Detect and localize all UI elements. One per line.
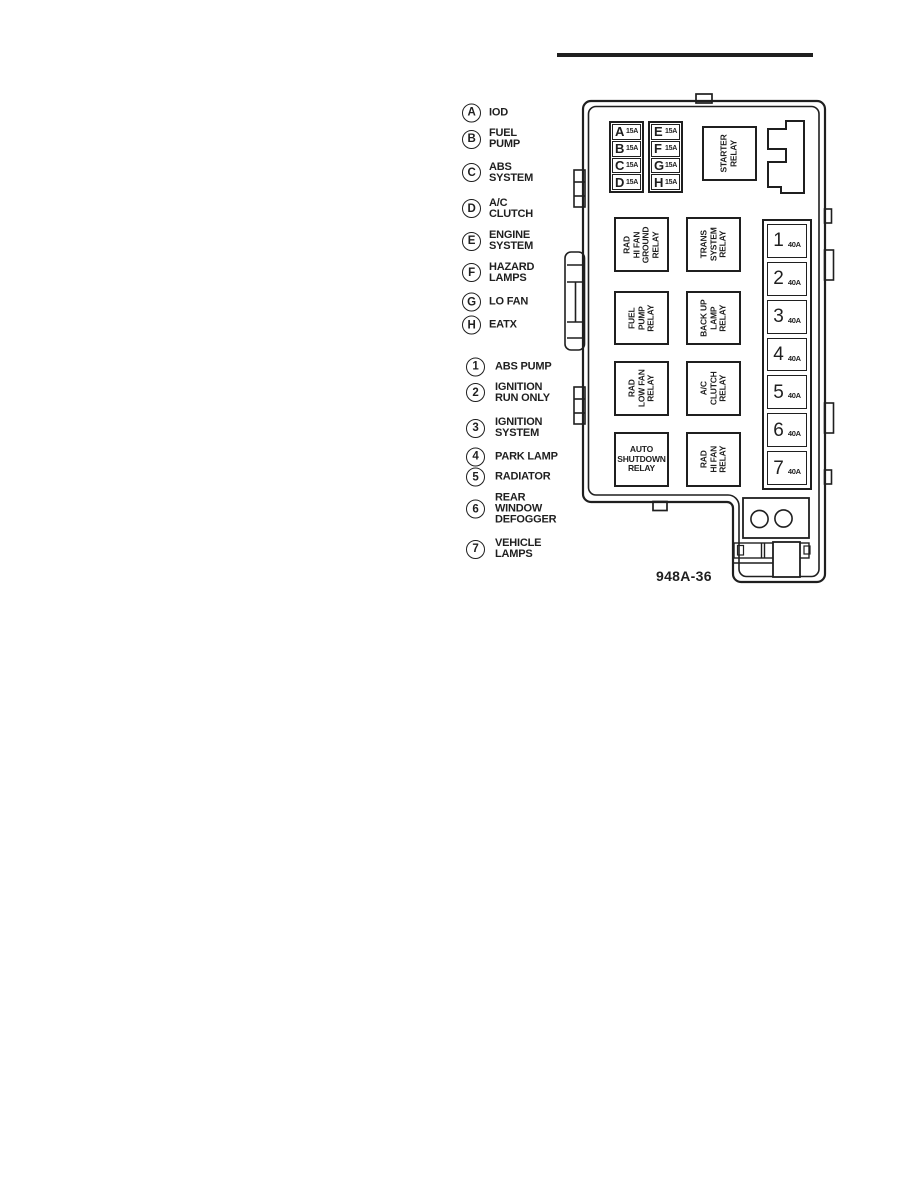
fuse-amps: 15A (665, 145, 677, 152)
legend-label: A/C CLUTCH (489, 198, 533, 220)
relay-label: AUTO SHUTDOWN RELAY (617, 445, 665, 474)
legend-item-g: G LO FAN (462, 293, 528, 312)
maxi-fuse-5: 5 40A (767, 375, 807, 409)
legend-symbol: H (462, 316, 481, 335)
maxi-fuse-amps: 40A (788, 467, 801, 476)
relay-label: STARTER RELAY (720, 134, 739, 172)
connector-tab (773, 542, 800, 577)
relay-starter: STARTER RELAY (702, 126, 757, 181)
relay-label: TRANS SYSTEM RELAY (699, 228, 728, 262)
maxi-fuse-amps: 40A (788, 240, 801, 249)
maxi-fuse-number: 3 (773, 307, 783, 326)
legend-symbol: 3 (466, 419, 485, 438)
fuse-amps: 15A (626, 145, 638, 152)
bolt-hole-right (775, 510, 792, 527)
legend-item-a: A IOD (462, 103, 508, 122)
relay-ac-clutch: A/C CLUTCH RELAY (686, 361, 741, 416)
fuse-letter: H (654, 176, 663, 189)
relay-trans-system: TRANS SYSTEM RELAY (686, 217, 741, 272)
legend-label: RADIATOR (495, 472, 550, 483)
relay-rad-hi-fan-ground: RAD HI FAN GROUND RELAY (614, 217, 669, 272)
maxi-fuse-4: 4 40A (767, 338, 807, 372)
fuse-letter: C (615, 159, 624, 172)
fuse-letter: G (654, 159, 664, 172)
legend-symbol: 2 (466, 383, 485, 402)
legend-label: LO FAN (489, 297, 528, 308)
legend-symbol: F (462, 263, 481, 282)
stepped-connector (768, 121, 804, 193)
fuse-letter: A (615, 125, 624, 138)
legend-symbol: 6 (466, 500, 485, 519)
legend-label: ENGINE SYSTEM (489, 230, 533, 252)
legend-item-2: 2 IGNITION RUN ONLY (466, 382, 550, 404)
legend-symbol: 7 (466, 540, 485, 559)
legend-label: IOD (489, 107, 508, 118)
relay-label: A/C CLUTCH RELAY (699, 372, 728, 406)
legend-symbol: B (462, 130, 481, 149)
legend-symbol: 5 (466, 468, 485, 487)
relay-fuel-pump: FUEL PUMP RELAY (614, 291, 669, 345)
fuse-b: B 15A (612, 141, 641, 157)
maxi-fuse-amps: 40A (788, 316, 801, 325)
maxi-fuse-2: 2 40A (767, 262, 807, 296)
maxi-fuse-amps: 40A (788, 391, 801, 400)
fuse-block-a-d: A 15A B 15A C 15A D 15A (609, 121, 644, 193)
maxi-fuse-number: 5 (773, 383, 783, 402)
legend-item-h: H EATX (462, 316, 517, 335)
fuse-amps: 15A (665, 128, 677, 135)
legend-symbol: C (462, 163, 481, 182)
legend-label: PARK LAMP (495, 451, 558, 462)
maxi-fuse-number: 7 (773, 459, 783, 478)
figure-code: 948A-36 (656, 568, 712, 584)
legend-item-1: 1 ABS PUMP (466, 357, 551, 376)
maxi-fuse-amps: 40A (788, 278, 801, 287)
maxi-fuse-number: 6 (773, 421, 783, 440)
maxi-fuse-number: 1 (773, 231, 783, 250)
legend-label: REAR WINDOW DEFOGGER (495, 493, 556, 526)
fuse-letter: B (615, 142, 624, 155)
legend-item-c: C ABS SYSTEM (462, 162, 533, 184)
legend-item-3: 3 IGNITION SYSTEM (466, 417, 542, 439)
fuse-c: C 15A (612, 158, 641, 174)
legend-label: ABS PUMP (495, 361, 551, 372)
fuse-letter: D (615, 176, 624, 189)
fuse-f: F 15A (651, 141, 680, 157)
legend-item-f: F HAZARD LAMPS (462, 262, 534, 284)
bottom-connector-strip (734, 542, 810, 577)
legend-label: IGNITION RUN ONLY (495, 382, 550, 404)
legend-item-d: D A/C CLUTCH (462, 198, 533, 220)
fuse-block-e-h: E 15A F 15A G 15A H 15A (648, 121, 683, 193)
legend-symbol: E (462, 232, 481, 251)
maxi-fuse-3: 3 40A (767, 300, 807, 334)
maxi-fuse-amps: 40A (788, 354, 801, 363)
relay-auto-shutdown: AUTO SHUTDOWN RELAY (614, 432, 669, 487)
legend-label: FUEL PUMP (489, 128, 520, 150)
legend-symbol: A (462, 103, 481, 122)
header-rule (557, 53, 813, 57)
fuse-amps: 15A (665, 162, 677, 169)
left-latch (565, 252, 585, 350)
terminal-block (743, 498, 809, 538)
relay-label: RAD LOW FAN RELAY (627, 370, 656, 408)
relay-label: BACK UP LAMP RELAY (699, 299, 728, 336)
fuse-g: G 15A (651, 158, 680, 174)
legend-item-e: E ENGINE SYSTEM (462, 230, 533, 252)
maxi-fuse-7: 7 40A (767, 451, 807, 485)
relay-back-up-lamp: BACK UP LAMP RELAY (686, 291, 741, 345)
fuse-amps: 15A (626, 162, 638, 169)
relay-rad-low-fan: RAD LOW FAN RELAY (614, 361, 669, 416)
manual-page: A IOD B FUEL PUMP C ABS SYSTEM D A/C CLU… (0, 0, 918, 1188)
bolt-hole-left (751, 510, 768, 527)
legend-item-5: 5 RADIATOR (466, 468, 550, 487)
maxi-fuse-6: 6 40A (767, 413, 807, 447)
fuse-letter: E (654, 125, 662, 138)
relay-rad-hi-fan: RAD HI FAN RELAY (686, 432, 741, 487)
legend-item-7: 7 VEHICLE LAMPS (466, 538, 541, 560)
maxi-fuse-1: 1 40A (767, 224, 807, 258)
fuse-letter: F (654, 142, 661, 155)
maxi-fuse-number: 4 (773, 345, 783, 364)
fuse-e: E 15A (651, 124, 680, 140)
maxi-fuse-column: 1 40A 2 40A 3 40A 4 40A 5 40A 6 40A 7 40… (762, 219, 812, 490)
legend-symbol: G (462, 293, 481, 312)
fuse-a: A 15A (612, 124, 641, 140)
legend-symbol: 4 (466, 447, 485, 466)
legend-label: VEHICLE LAMPS (495, 538, 541, 560)
relay-label: FUEL PUMP RELAY (627, 304, 656, 331)
legend-item-b: B FUEL PUMP (462, 128, 520, 150)
legend-symbol: 1 (466, 357, 485, 376)
legend-label: ABS SYSTEM (489, 162, 533, 184)
fuse-amps: 15A (665, 179, 677, 186)
fuse-amps: 15A (626, 128, 638, 135)
legend-label: EATX (489, 320, 517, 331)
fuse-h: H 15A (651, 174, 680, 190)
maxi-fuse-number: 2 (773, 269, 783, 288)
fuse-amps: 15A (626, 179, 638, 186)
maxi-fuse-amps: 40A (788, 429, 801, 438)
fuse-d: D 15A (612, 174, 641, 190)
relay-label: RAD HI FAN GROUND RELAY (622, 226, 660, 263)
legend-item-6: 6 REAR WINDOW DEFOGGER (466, 493, 556, 526)
relay-label: RAD HI FAN RELAY (699, 446, 728, 473)
legend-symbol: D (462, 199, 481, 218)
legend-label: HAZARD LAMPS (489, 262, 534, 284)
legend-item-4: 4 PARK LAMP (466, 447, 558, 466)
legend-label: IGNITION SYSTEM (495, 417, 542, 439)
